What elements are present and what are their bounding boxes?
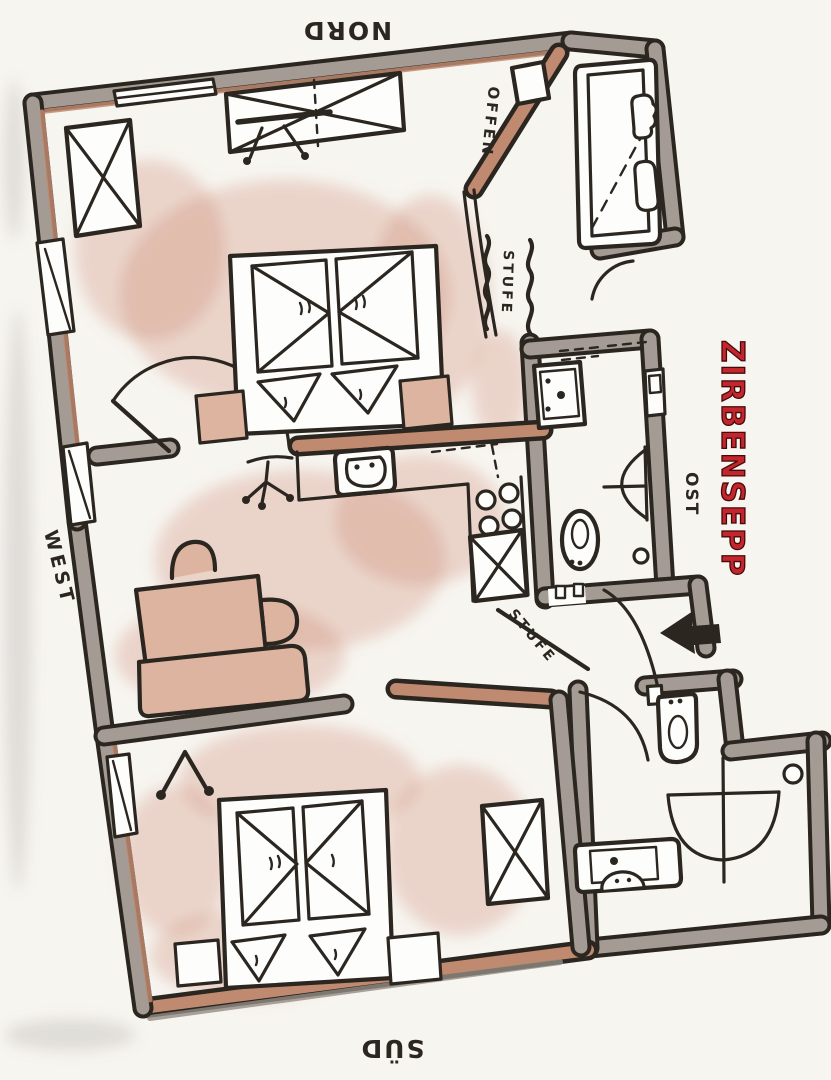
alcove-bed [575,60,660,248]
nightstand-right [388,933,441,984]
plan-title: ZIRBENSEPP [714,340,750,578]
step-wavy-line-left [485,236,489,329]
toilet-wc [658,694,697,762]
shower-head [784,765,802,783]
toilet-middle [562,511,598,569]
kitchen-xbox [470,530,527,601]
floor-plan-svg: NORD SÜD WEST OST OFFEN STUFE STUFE ZIRB… [0,0,831,1080]
label-stufe-upper: STUFE [498,250,516,316]
window-left-upper [37,239,74,335]
label-sued: SÜD [359,1034,424,1064]
chair-arch-right [263,600,297,644]
nightstand-left [175,940,221,986]
kitchen-sink [335,448,395,495]
alcove-room [512,60,660,248]
bath-sink [534,362,585,428]
wardrobe-south-xbox [482,800,548,904]
door-entrance [604,590,663,704]
sink-south [575,839,681,892]
nightstand-left [196,391,247,443]
alcove-stool [512,62,549,104]
shower-south [668,758,802,882]
nightstand-right [400,376,452,429]
bath-right-opening [645,369,665,416]
label-nord: NORD [302,16,392,45]
label-stufe-lower: STUFE [505,606,559,666]
floor-drain [634,549,648,563]
scanned-floor-plan: NORD SÜD WEST OST OFFEN STUFE STUFE ZIRB… [0,0,831,1080]
bathroom-south [575,694,802,892]
shower-middle [604,447,647,520]
double-bed-south [219,790,393,988]
wardrobe-corner-xbox [66,120,140,236]
label-ost: OST [681,472,701,516]
step-wavy-line-right [528,240,532,333]
door-alcove [592,261,633,299]
